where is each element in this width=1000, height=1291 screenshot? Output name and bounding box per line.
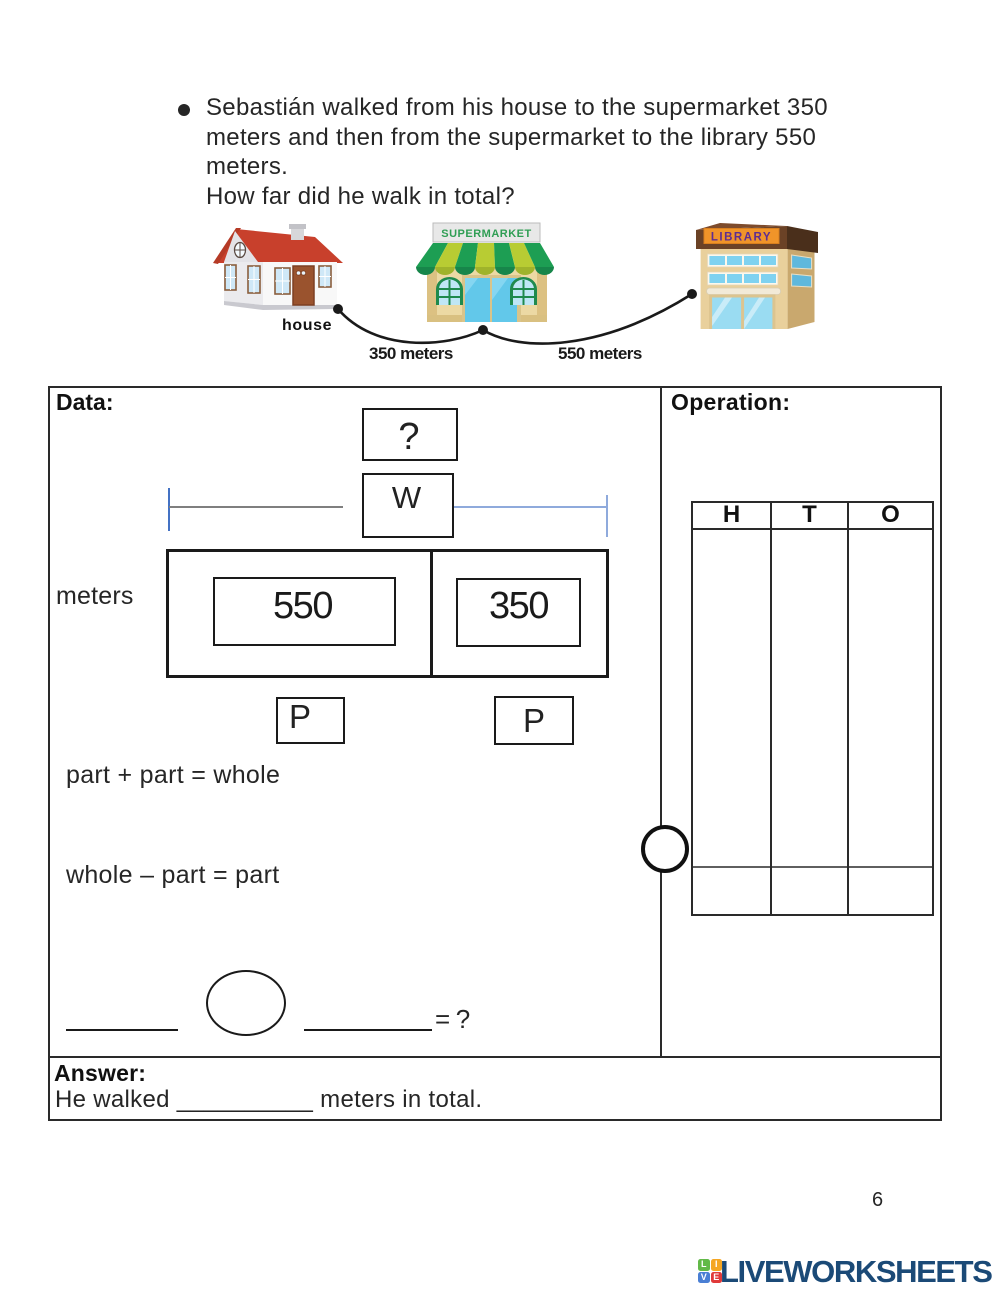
svg-text:SUPERMARKET: SUPERMARKET — [441, 228, 531, 240]
svg-text:LIBRARY: LIBRARY — [711, 232, 772, 244]
